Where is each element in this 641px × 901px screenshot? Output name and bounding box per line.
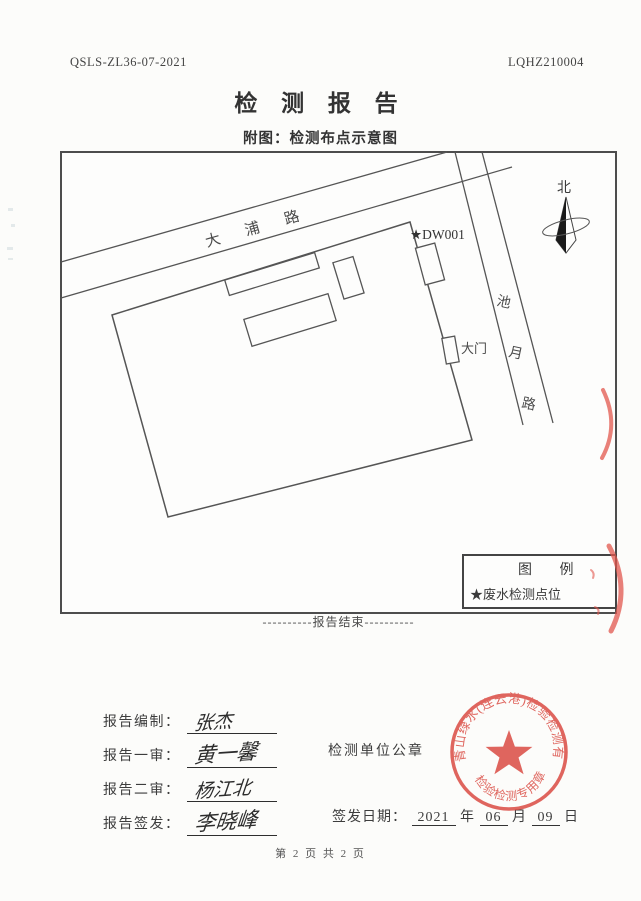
issue-date-row: 签发日期： 2021 年 06 月 09 日 <box>332 806 579 826</box>
signoff-block: 报告编制： 张杰 报告一审： 黄一馨 报告二审： 杨江北 报告签发： 李晓峰 <box>103 700 333 836</box>
issue-date-day: 09 <box>532 810 560 826</box>
signature-line: 李晓峰 <box>187 809 277 836</box>
signoff-label: 报告签发： <box>103 813 181 836</box>
signoff-label: 报告二审： <box>103 779 181 802</box>
signoff-row-first-review: 报告一审： 黄一馨 <box>103 734 333 768</box>
gate-label: 大门 <box>461 341 487 356</box>
issue-date-month-unit: 月 <box>512 810 527 825</box>
signature-second-reviewer: 杨江北 <box>193 773 253 804</box>
end-of-report-text: ----------报告结束---------- <box>61 613 616 630</box>
issue-date-year: 2021 <box>412 810 456 826</box>
page-number: 第 2 页 共 2 页 <box>0 845 641 861</box>
company-seal: 青山绿水(连云港)检验检测有限公司 检验检测专用章 <box>440 680 580 820</box>
signoff-row-issuer: 报告签发： 李晓峰 <box>103 802 333 836</box>
report-page: QSLS-ZL36-07-2021 LQHZ210004 检 测 报 告 附图：… <box>0 0 641 901</box>
issue-date-year-unit: 年 <box>460 810 475 825</box>
signoff-row-second-review: 报告二审： 杨江北 <box>103 768 333 802</box>
signoff-label: 报告编制： <box>103 711 181 734</box>
seal-ring <box>452 695 566 809</box>
issue-date-month: 06 <box>480 810 508 826</box>
legend-title: 图 例 <box>518 562 586 578</box>
issue-date-label: 签发日期： <box>332 810 407 825</box>
site-layout-diagram: 大浦路 池 月 路 ★DW001 大门 北 <box>0 0 641 680</box>
legend-item-wastewater-point: ★废水检测点位 <box>470 587 561 602</box>
seal-company-text: 青山绿水(连云港)检验检测有限公司 <box>440 680 565 763</box>
signoff-row-preparer: 报告编制： 张杰 <box>103 700 333 734</box>
signature-preparer: 张杰 <box>193 706 234 736</box>
signature-line: 张杰 <box>187 707 277 734</box>
signature-line: 黄一馨 <box>187 741 277 768</box>
legend-box: 图 例 ★废水检测点位 <box>463 555 616 608</box>
signature-line: 杨江北 <box>187 775 277 802</box>
signoff-label: 报告一审： <box>103 745 181 768</box>
seal-caption: 检测单位公章 <box>328 740 424 760</box>
issue-date-day-unit: 日 <box>564 810 579 825</box>
signature-issuer: 李晓峰 <box>193 803 259 838</box>
scan-specks <box>7 208 15 260</box>
dw001-point-label: ★DW001 <box>410 227 465 242</box>
signature-first-reviewer: 黄一馨 <box>193 735 259 770</box>
seal-type-text: 检验检测专用章 <box>472 768 549 804</box>
north-label: 北 <box>557 180 571 196</box>
seal-star <box>486 730 533 774</box>
